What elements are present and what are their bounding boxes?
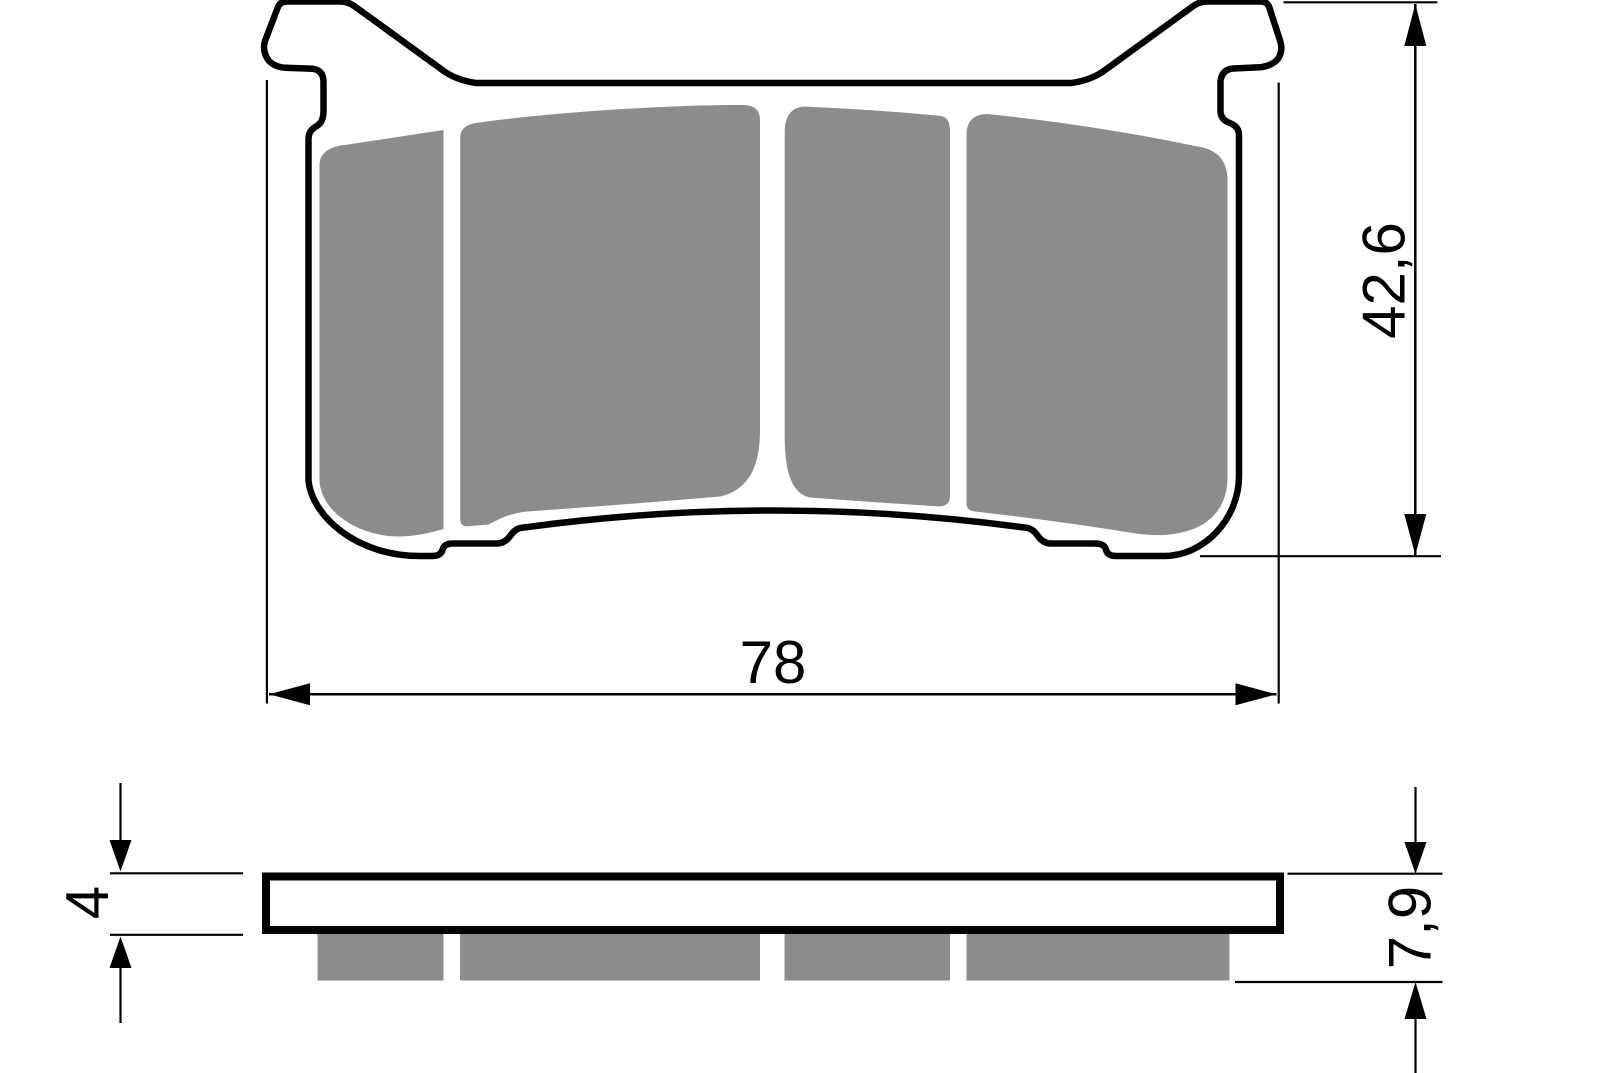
svg-text:4: 4 [54,886,121,919]
svg-text:42,6: 42,6 [1351,222,1418,339]
svg-text:78: 78 [740,629,807,696]
svg-text:7,9: 7,9 [1377,886,1444,969]
